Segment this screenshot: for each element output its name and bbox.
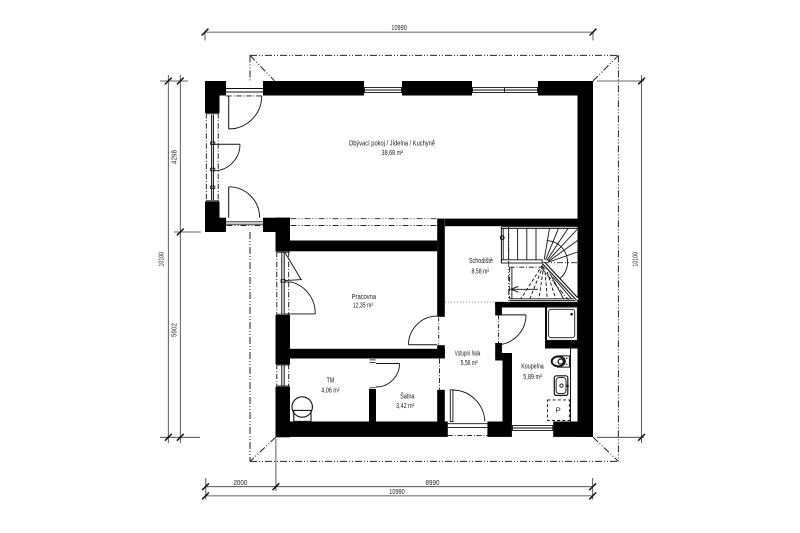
svg-text:Vstupní hala: Vstupní hala bbox=[455, 348, 481, 357]
svg-text:4298: 4298 bbox=[171, 150, 178, 164]
svg-text:2000: 2000 bbox=[233, 480, 247, 487]
svg-text:5,89 m²: 5,89 m² bbox=[523, 372, 542, 381]
svg-text:38,68 m²: 38,68 m² bbox=[382, 148, 404, 157]
svg-text:4,06 m²: 4,06 m² bbox=[321, 386, 340, 395]
svg-text:12,35 m²: 12,35 m² bbox=[353, 301, 374, 310]
svg-text:8990: 8990 bbox=[426, 480, 440, 487]
svg-text:10990: 10990 bbox=[391, 25, 406, 32]
svg-text:TM: TM bbox=[326, 376, 334, 385]
svg-text:Schodiště: Schodiště bbox=[469, 256, 493, 265]
svg-text:8,58 m²: 8,58 m² bbox=[471, 266, 489, 275]
svg-text:10100: 10100 bbox=[159, 252, 166, 267]
svg-text:Pracovna: Pracovna bbox=[352, 292, 377, 301]
svg-text:Koupelna: Koupelna bbox=[521, 361, 544, 370]
svg-text:Šatna: Šatna bbox=[400, 392, 415, 401]
svg-text:5,56 m²: 5,56 m² bbox=[461, 358, 479, 367]
svg-text:10100: 10100 bbox=[632, 252, 639, 267]
svg-text:5902: 5902 bbox=[171, 323, 178, 337]
svg-text:10990: 10990 bbox=[389, 489, 404, 496]
svg-text:Obývací pokoj / Jídelna / Kuch: Obývací pokoj / Jídelna / Kuchyně bbox=[349, 139, 435, 148]
svg-text:3,42 m²: 3,42 m² bbox=[396, 401, 415, 410]
svg-text:P: P bbox=[556, 406, 561, 415]
